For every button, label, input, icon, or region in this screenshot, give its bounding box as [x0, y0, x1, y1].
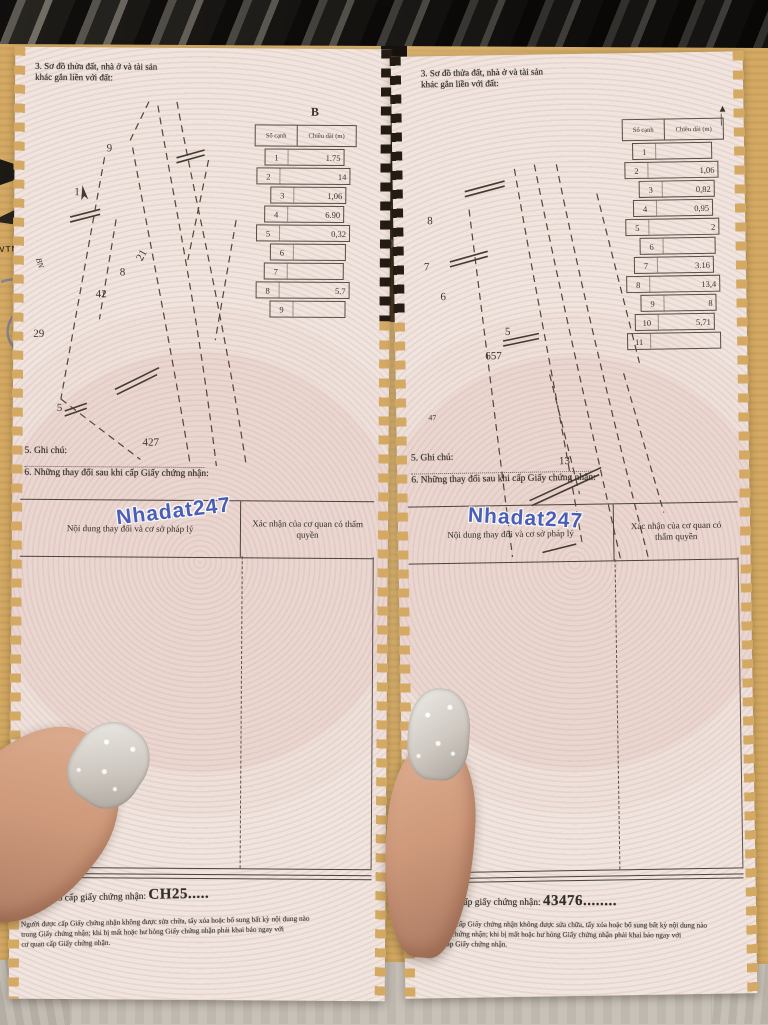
- edge-table-col2: Chiều dài (m): [297, 132, 355, 139]
- edge-table-row: 6: [270, 243, 346, 261]
- note-changes: 6. Những thay đổi sau khi cấp Giấy chứng…: [24, 467, 209, 481]
- edge-table-col1: Số cạnh: [256, 125, 298, 145]
- edge-length: 1,06: [294, 190, 345, 200]
- table-divider-dashed: [240, 556, 243, 868]
- edge-length: 0,32: [280, 228, 349, 238]
- edge-number: 4: [634, 201, 657, 216]
- photo-two-land-certificates: VTNAM A D 3. Sơ đồ thửa đất, nhà ở và tà…: [0, 0, 768, 1024]
- sketch-arrow: [81, 185, 88, 200]
- edge-length: 0,95: [657, 202, 712, 213]
- edge-number: 11: [628, 334, 651, 349]
- edge-table-col2: Chiều dài (m): [665, 125, 723, 133]
- north-label: B: [311, 105, 319, 120]
- change-table-col2: Xác nhận của cơ quan có thẩm quyền: [241, 501, 374, 558]
- notes-section: 5. Ghi chú: 6. Những thay đổi sau khi cấ…: [24, 445, 209, 481]
- edge-table-row: 8 5.7: [256, 281, 350, 299]
- edge-length: [656, 150, 711, 151]
- sketch-label: 8: [427, 215, 433, 227]
- edge-length: 5.7: [280, 285, 349, 295]
- edge-number: 7: [265, 263, 288, 278]
- edge-table-row: 9: [269, 300, 345, 318]
- serial-number: 43476........: [543, 893, 617, 909]
- page-heading: 3. Sơ đồ thửa đất, nhà ở và tài sản khác…: [421, 66, 543, 90]
- edge-number: 1: [266, 149, 289, 164]
- edge-table-row: 3 0,82: [639, 180, 715, 198]
- sketch-label: 5: [505, 326, 511, 338]
- edge-length: 1.75: [289, 152, 344, 162]
- edge-number: 5: [626, 220, 649, 235]
- edge-number: 1: [633, 144, 656, 159]
- edge-number: 3: [271, 187, 294, 202]
- edge-number: 6: [271, 244, 294, 259]
- edge-number: 2: [625, 163, 648, 178]
- edge-table-col1: Số cạnh: [623, 120, 665, 141]
- edge-table-row: 1: [632, 142, 712, 160]
- edge-number: 8: [257, 282, 280, 297]
- edge-table-row: 7: [264, 262, 344, 280]
- edge-number: 2: [257, 168, 280, 183]
- edge-number: 6: [641, 239, 664, 254]
- edge-number: 9: [641, 296, 664, 311]
- edge-number: 3: [640, 182, 663, 197]
- edge-table-row: 8 13,4: [626, 275, 720, 293]
- edge-table-rows: 1 2 1,06 3 0,82 4 0,95: [622, 142, 727, 351]
- sketch-label: 8: [120, 266, 126, 278]
- edge-length: 13,4: [650, 278, 719, 289]
- edge-table-row: 5 2: [625, 218, 719, 236]
- change-table-col2: Xác nhận của cơ quan có thẩm quyền: [614, 502, 739, 560]
- table-right-border: [371, 557, 374, 869]
- edge-length: [651, 340, 720, 341]
- edge-table-row: 5 0,32: [256, 224, 350, 242]
- edge-number: 9: [270, 301, 293, 316]
- edge-length: 1,06: [648, 164, 717, 175]
- edge-length-table-right: Số cạnh Chiều dài (m) 1 2 1,06: [622, 118, 728, 351]
- page-heading: 3. Sơ đồ thửa đất, nhà ở và tài sản khác…: [35, 61, 157, 84]
- sketch-label: 29: [33, 328, 45, 340]
- edge-length: 6.90: [288, 209, 343, 219]
- edge-length: [664, 245, 715, 246]
- edge-length: 3.16: [658, 259, 713, 270]
- sketch-label: 9: [107, 142, 113, 154]
- edge-length: 0,82: [663, 183, 714, 194]
- sketch-label: 6: [440, 291, 446, 303]
- edge-length: 5,71: [659, 316, 714, 327]
- edge-table-rows: 1 1.75 2 14 3 1,06 4 6.: [253, 148, 356, 318]
- sketch-label: 5: [57, 402, 63, 414]
- edge-table-row: 2 14: [256, 167, 350, 185]
- sketch-label: 47: [428, 413, 436, 422]
- edge-number: 4: [265, 206, 288, 221]
- cadastral-sketch-left: 9 1 8 42 21 29 5 427 BN: [28, 99, 281, 469]
- edge-table-row: 11: [627, 332, 721, 350]
- edge-number: 5: [257, 225, 280, 240]
- edge-table-row: 4 0,95: [633, 199, 713, 217]
- sketch-label: BN: [34, 257, 46, 270]
- edge-table-header: Số cạnh Chiều dài (m): [622, 118, 724, 142]
- edge-table-row: 9 8: [640, 294, 716, 312]
- edge-table-row: 7 3.16: [634, 256, 714, 274]
- edge-table-row: 2 1,06: [624, 161, 718, 179]
- sketch-label: 42: [96, 288, 107, 300]
- edge-length: 14: [280, 171, 349, 181]
- edge-table-row: 3 1,06: [270, 186, 346, 204]
- sketch-label: 21: [134, 248, 150, 263]
- edge-table-row: 6: [639, 237, 715, 255]
- heading-line-2: khác gắn liền với đất:: [421, 77, 543, 90]
- edge-table-row: 4 6.90: [264, 205, 344, 223]
- center-thumb-holding-page: [373, 683, 491, 949]
- sketch-label: 7: [424, 261, 430, 273]
- edge-length: 2: [649, 221, 718, 232]
- edge-number: 7: [635, 258, 658, 273]
- edge-number: 8: [627, 277, 650, 292]
- heading-line-1: 3. Sơ đồ thửa đất, nhà ở và tài sản: [35, 61, 157, 73]
- serial-number: CH25.....: [148, 886, 209, 903]
- edge-table-row: 10 5,71: [635, 313, 715, 331]
- edge-number: 10: [636, 315, 659, 330]
- note-ghi-chu: 5. Ghi chú:: [24, 445, 209, 459]
- table-right-border: [738, 557, 744, 867]
- heading-line-2: khác gắn liền với đất:: [35, 72, 157, 84]
- sketch-label: 657: [485, 350, 502, 362]
- notes-section: 5. Ghi chú: 6. Những thay đổi sau khi cấ…: [411, 450, 596, 488]
- edge-table-row: 1 1.75: [265, 148, 345, 166]
- sketch-label: 1: [74, 186, 80, 198]
- edge-length: 8: [664, 297, 715, 308]
- edge-table-header: Số cạnh Chiều dài (m): [255, 124, 357, 147]
- edge-length-table-left: Số cạnh Chiều dài (m) 1 1.75 2 14: [253, 124, 356, 318]
- table-divider-dashed: [615, 559, 621, 869]
